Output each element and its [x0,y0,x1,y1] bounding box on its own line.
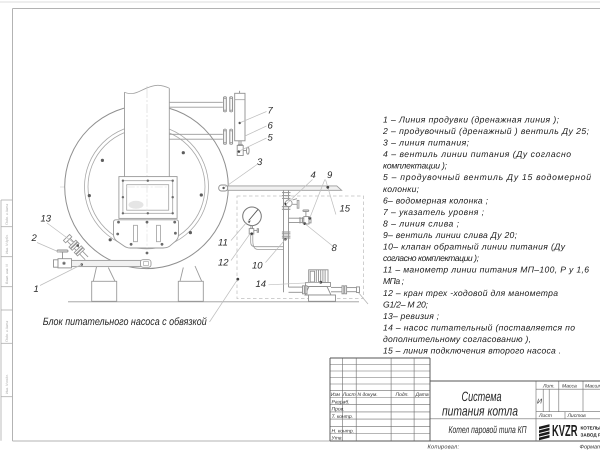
svg-text:8 – линия слива ;: 8 – линия слива ; [383,218,460,228]
svg-text:МПа ;: МПа ; [383,276,405,286]
svg-text:13– ревизия ;: 13– ревизия ; [383,311,440,321]
svg-text:11 – манометр линии питания М: 11 – манометр линии питания МП–100, Р у … [383,265,589,275]
svg-text:15: 15 [340,204,351,215]
svg-text:10: 10 [252,261,263,272]
svg-text:5 – продувочный вентиль Ду 15: 5 – продувочный вентиль Ду 15 водомерной [383,172,591,182]
svg-text:N докум.: N докум. [358,392,378,398]
svg-text:Инв. N дубл.: Инв. N дубл. [5,234,9,254]
svg-text:Взам. инв. N: Взам. инв. N [5,264,9,284]
svg-text:5: 5 [268,133,274,144]
svg-text:Изм: Изм [331,392,341,398]
svg-text:6– водомерная колонка ;: 6– водомерная колонка ; [383,195,489,205]
svg-text:9: 9 [327,170,333,181]
svg-text:7: 7 [268,106,274,117]
svg-text:Подп.: Подп. [396,392,409,398]
svg-text:КОТЕЛЬНЫЙ: КОТЕЛЬНЫЙ [581,425,600,431]
svg-text:14: 14 [256,279,267,290]
svg-text:8: 8 [332,243,338,254]
svg-text:Масштаб: Масштаб [585,384,600,390]
svg-text:Формат А4: Формат А4 [580,445,600,450]
svg-text:4: 4 [311,170,316,181]
svg-text:14 – насос питательный (пост: 14 – насос питательный (поставляется по [383,322,575,332]
svg-text:Котел паровой типа КП: Котел паровой типа КП [449,425,528,436]
svg-text:15 – линия подключения второг: 15 – линия подключения второго насоса . [383,346,561,356]
svg-text:Н. контр.: Н. контр. [332,428,355,434]
svg-text:Инв. N подл.: Инв. N подл. [5,374,9,394]
svg-text:согласно комплектации );: согласно комплектации ); [383,253,480,263]
svg-text:3: 3 [257,157,263,168]
svg-text:9– вентиль линии слива Ду 20;: 9– вентиль линии слива Ду 20; [383,230,518,240]
svg-text:Подп. и дата: Подп. и дата [5,321,9,342]
svg-text:3 – линия питания;: 3 – линия питания; [383,138,470,148]
svg-text:ЗАВОД РОССИИ: ЗАВОД РОССИИ [581,433,600,438]
svg-text:дополнительному согласованию ): дополнительному согласованию ), [383,334,531,344]
svg-text:12 – кран трех -ходовой для м: 12 – кран трех -ходовой для манометра [383,288,558,298]
svg-text:Лит.: Лит. [542,384,555,390]
svg-text:питания котла: питания котла [442,404,518,419]
svg-text:Утв.: Утв. [332,436,343,442]
svg-text:G1/2– М 20;: G1/2– М 20; [383,299,429,309]
svg-text:12: 12 [218,258,229,269]
svg-text:4 – вентиль линии питания (Д: 4 – вентиль линии питания (Ду согласно [383,149,571,159]
svg-text:6: 6 [268,121,274,132]
svg-text:комплектации );: комплектации ); [383,161,448,171]
svg-text:Лист: Лист [342,392,356,398]
svg-text:11: 11 [218,238,228,249]
svg-text:2 – продувочный (дренажный ): 2 – продувочный (дренажный ) вентиль Ду … [382,126,590,136]
svg-text:Листов: Листов [567,413,587,419]
svg-text:13: 13 [41,214,52,225]
svg-text:1 – Линия продувки (дренажна: 1 – Линия продувки (дренажная линия ); [383,115,560,125]
svg-text:Блок питательного насоса с обв: Блок питательного насоса с обвязкой [43,316,207,328]
svg-text:2: 2 [31,233,38,244]
svg-text:Дата: Дата [415,392,429,398]
svg-text:Масса: Масса [562,384,577,390]
svg-text:Подп. и дата: Подп. и дата [5,204,9,225]
svg-text:10– клапан обратный линии пит: 10– клапан обратный линии питания (Ду [383,242,566,252]
svg-text:KVZR: KVZR [552,423,578,440]
svg-text:Пров.: Пров. [332,407,345,413]
svg-text:Система: Система [462,389,502,404]
svg-text:Разраб.: Разраб. [332,400,350,406]
svg-text:7 – указатель уровня ;: 7 – указатель уровня ; [383,207,485,217]
svg-text:колонки;: колонки; [383,184,420,194]
svg-text:Т. контр.: Т. контр. [332,414,354,420]
svg-text:1: 1 [34,284,39,295]
svg-text:Лист: Лист [538,413,552,419]
svg-text:Копировал:: Копировал: [428,445,460,450]
